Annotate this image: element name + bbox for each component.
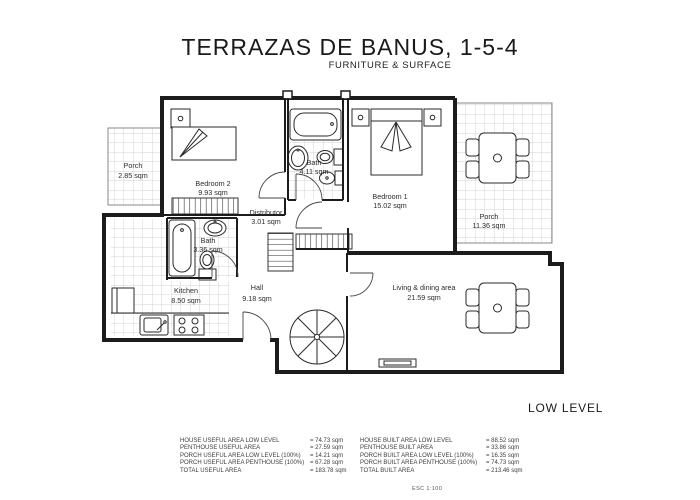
- area-row-label: PORCH BUILT AREA PENTHOUSE (100%): [360, 460, 486, 467]
- dining-table-set: [466, 283, 529, 333]
- area-row-value: = 16.35 sqm: [486, 453, 538, 460]
- area-row-value: = 67.28 sqm: [310, 460, 360, 467]
- hall-shelf-closet: [268, 233, 293, 271]
- bathtub-icon: [290, 109, 341, 140]
- bathtub-low-icon: [169, 220, 195, 276]
- bedroom2-wardrobe: [172, 198, 238, 214]
- area-row-label: TOTAL BUILT AREA: [360, 468, 486, 475]
- area-row-label: PORCH USEFUL AREA PENTHOUSE (100%): [180, 460, 310, 467]
- area-row-label: PORCH USEFUL AREA LOW LEVEL (100%): [180, 453, 310, 460]
- tv-sideboard-icon: [379, 359, 416, 367]
- room-area-bedroom2: 9.93 sqm: [198, 188, 228, 197]
- room-label-porch-right: Porch: [480, 212, 499, 221]
- wall-pillar: [283, 91, 292, 99]
- room-area-hall: 9.18 sqm: [242, 294, 272, 303]
- room-area-bath-top: 4.11 sqm: [299, 167, 328, 176]
- stove-icon: [174, 315, 204, 335]
- room-area-porch-right: 11.36 sqm: [472, 221, 505, 230]
- area-row-label: TOTAL USEFUL AREA: [180, 468, 310, 475]
- room-label-bedroom2: Bedroom 2: [195, 179, 230, 188]
- room-label-bath-low: Bath: [201, 236, 216, 245]
- room-area-porch-left: 2.85 sqm: [118, 171, 148, 180]
- distributor-wardrobe: [296, 234, 352, 249]
- room-label-bedroom1: Bedroom 1: [372, 192, 407, 201]
- area-row-label: PORCH BUILT AREA LOW LEVEL (100%): [360, 453, 486, 460]
- area-row-value: = 74.73 sqm: [310, 438, 360, 445]
- bedroom2-door: [259, 172, 285, 198]
- front-door: [243, 312, 271, 340]
- room-label-hall: Hall: [251, 283, 264, 292]
- area-row-label: HOUSE USEFUL AREA LOW LEVEL: [180, 438, 310, 445]
- area-row-value: = 27.59 sqm: [310, 445, 360, 452]
- level-label: LOW LEVEL: [528, 401, 603, 415]
- bedroom1-door: [296, 202, 322, 228]
- area-row-value: = 33.86 sqm: [486, 445, 538, 452]
- spiral-staircase: [290, 310, 344, 364]
- area-row-value: = 74.73 sqm: [486, 460, 538, 467]
- floor-plan: Porch 2.85 sqm Bedroom 2 9.93 sqm Bath 4…: [0, 0, 700, 500]
- room-area-bath-low: 3.36 sqm: [193, 245, 223, 254]
- bedroom2-bed: [171, 109, 236, 160]
- room-area-kitchen: 8.50 sqm: [171, 296, 201, 305]
- living-door: [350, 273, 373, 296]
- room-area-distributor: 3.01 sqm: [251, 217, 281, 226]
- room-area-living: 21.59 sqm: [407, 293, 441, 302]
- drawing-sheet: TERRAZAS DE BANUS, 1-5-4 FURNITURE & SUR…: [0, 0, 700, 500]
- room-area-bedroom1: 15.02 sqm: [373, 201, 407, 210]
- area-row-value: = 88.52 sqm: [486, 438, 538, 445]
- area-row-label: HOUSE BUILT AREA LOW LEVEL: [360, 438, 486, 445]
- scale-label: ESC 1:100: [412, 486, 442, 492]
- wall-pillar: [341, 91, 350, 99]
- area-row-value: = 213.46 sqm: [486, 468, 538, 475]
- area-row-value: = 14.21 sqm: [310, 453, 360, 460]
- room-label-kitchen: Kitchen: [174, 286, 198, 295]
- room-label-living: Living & dining area: [392, 283, 455, 292]
- area-summary-table: HOUSE USEFUL AREA LOW LEVEL = 74.73 sqm …: [180, 438, 538, 475]
- bedroom1-bed: [352, 109, 441, 175]
- area-row-label: PENTHOUSE BUILT AREA: [360, 445, 486, 452]
- room-label-bath-top: Bath: [307, 158, 322, 167]
- room-label-distributor: Distributor: [250, 208, 283, 217]
- room-label-porch-left: Porch: [124, 161, 143, 170]
- area-row-label: PENTHOUSE USEFUL AREA: [180, 445, 310, 452]
- sink-low-icon: [204, 220, 226, 236]
- area-row-value: = 183.78 sqm: [310, 468, 360, 475]
